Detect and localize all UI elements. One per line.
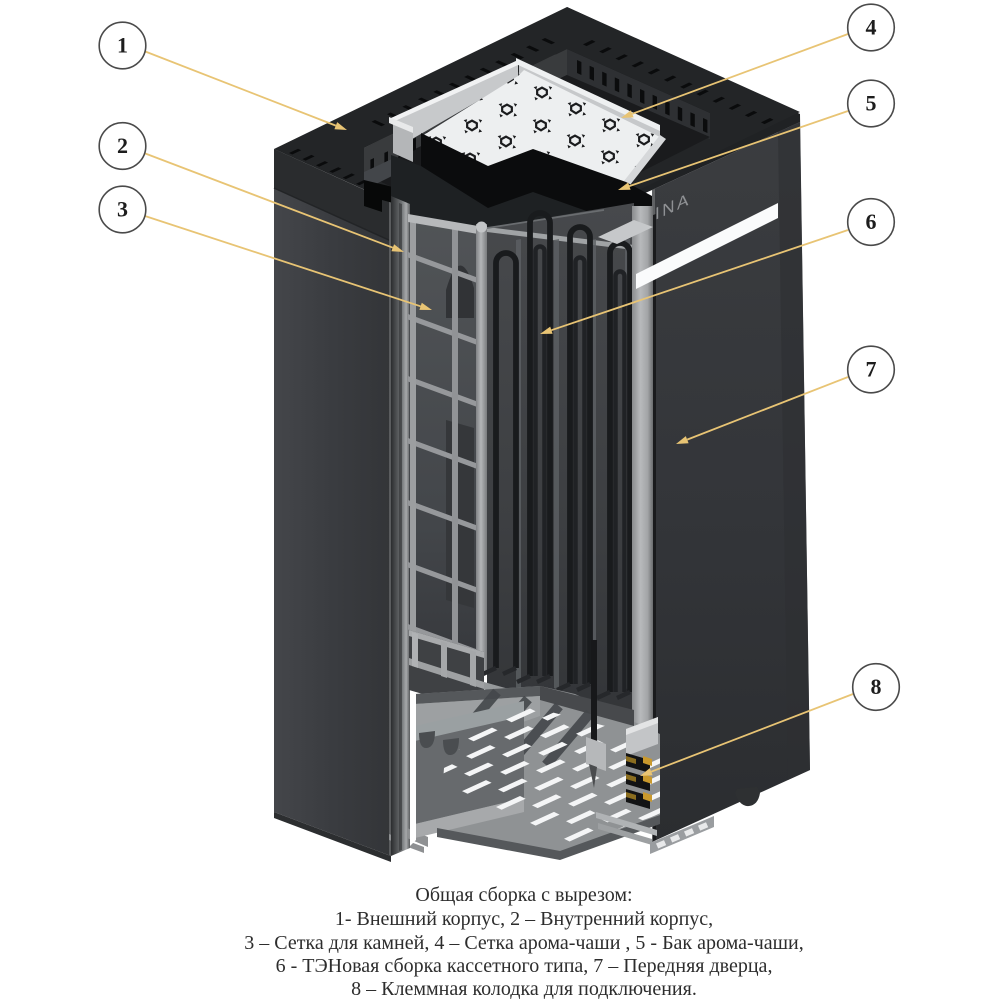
svg-text:1- Внешний корпус, 2 – Внутрен: 1- Внешний корпус, 2 – Внутренний корпус… [335, 908, 713, 930]
svg-text:2: 2 [117, 133, 128, 158]
svg-text:6 - ТЭНовая сборка кассетного: 6 - ТЭНовая сборка кассетного типа, 7 – … [276, 955, 773, 977]
svg-text:3 – Сетка для камней, 4 – Сетк: 3 – Сетка для камней, 4 – Сетка арома-ча… [244, 932, 804, 954]
svg-text:8 – Клеммная колодка для подкл: 8 – Клеммная колодка для подключения. [351, 978, 697, 1000]
svg-text:1: 1 [117, 32, 128, 57]
svg-text:5: 5 [866, 90, 877, 115]
svg-text:Общая сборка с вырезом:: Общая сборка с вырезом: [415, 884, 632, 906]
svg-text:3: 3 [117, 196, 128, 221]
svg-text:4: 4 [866, 14, 877, 39]
svg-text:6: 6 [866, 209, 877, 234]
svg-text:8: 8 [871, 674, 882, 699]
svg-text:7: 7 [866, 356, 877, 381]
